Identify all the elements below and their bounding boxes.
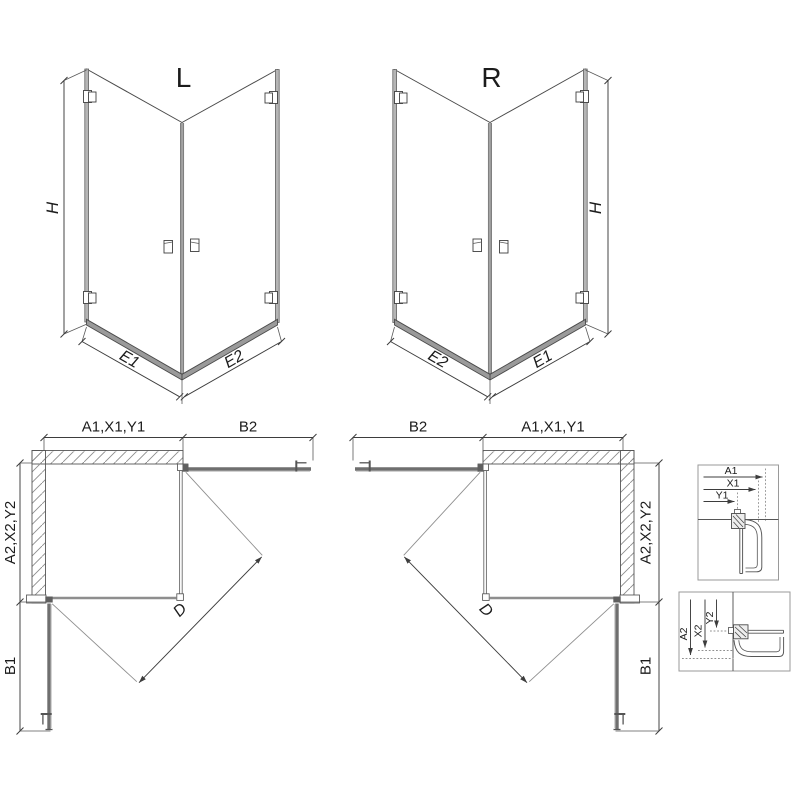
dimension-h: H <box>585 70 612 338</box>
dim-label-b2: B2 <box>239 419 257 436</box>
door-closed-outline <box>180 471 183 596</box>
plan-view-left: D A1,X1,Y1 B2 A2,X2,Y2 B1 <box>2 419 317 735</box>
detail-profile-bottom: A2 X2 Y2 <box>678 592 790 671</box>
corner-profile <box>177 594 184 601</box>
dim-label-b2: B2 <box>409 419 427 436</box>
iso-view-left: H E1 E2 L <box>43 62 285 404</box>
dim-label-y1: Y1 <box>716 490 729 502</box>
hinge <box>183 464 189 471</box>
wall-hatched <box>621 451 635 604</box>
door-closed-outline <box>484 471 487 596</box>
wall-hatched <box>483 451 634 465</box>
plan-view-right: D B2 A1,X1,Y1 A2,X2,Y2 B1 <box>350 419 663 735</box>
dim-label-h: H <box>43 201 62 214</box>
iso-view-right: H E2 E1 R <box>387 62 612 404</box>
wall-profile <box>393 70 397 323</box>
dim-label-a1: A1 <box>725 465 738 477</box>
hinge <box>478 464 484 471</box>
dimension-h: H <box>43 70 87 338</box>
dim-label-x1: X1 <box>727 478 740 490</box>
dim-label-b1: B1 <box>2 657 19 675</box>
dim-label-a1x1y1: A1,X1,Y1 <box>521 419 584 436</box>
dim-label-a2x2y2: A2,X2,Y2 <box>638 501 655 564</box>
dim-label-d: D <box>476 600 497 620</box>
wall-profile <box>583 69 587 322</box>
fixing-tab <box>729 628 734 634</box>
diagonal-dimension <box>404 557 527 683</box>
dim-label-a1x1y1: A1,X1,Y1 <box>82 419 145 436</box>
dim-label-y2: Y2 <box>704 611 716 624</box>
diagonal-dimension <box>139 557 262 683</box>
dim-label-h: H <box>586 201 605 214</box>
dim-label-d: D <box>170 600 191 620</box>
wall-hatched <box>32 451 183 465</box>
detail-profile-top: A1 X1 Y1 <box>698 465 779 580</box>
door-swing-45 <box>52 472 262 682</box>
technical-drawing-page: H E1 E2 L <box>0 0 800 800</box>
wall-hatched <box>32 451 46 604</box>
wall-profile <box>275 70 279 323</box>
dim-label-a2x2y2: A2,X2,Y2 <box>2 501 19 564</box>
dim-label-b1: B1 <box>638 657 655 675</box>
shower-enclosure-drawing: H E1 E2 L <box>0 0 800 800</box>
wall-bracket <box>732 514 746 529</box>
view-label-right: R <box>481 62 501 93</box>
wall-profile <box>85 69 89 322</box>
dim-label-a2: A2 <box>678 627 690 640</box>
door-swing-45 <box>404 472 614 682</box>
view-label-left: L <box>176 62 192 93</box>
dim-label-x2: X2 <box>693 624 705 637</box>
